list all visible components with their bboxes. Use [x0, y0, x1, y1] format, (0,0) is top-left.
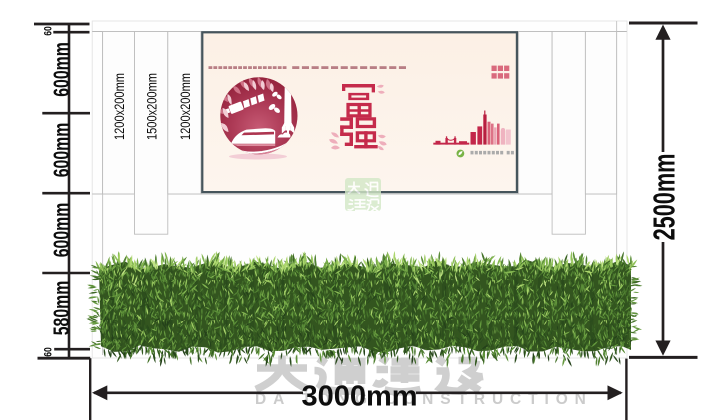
svg-text:600mm: 600mm	[50, 203, 74, 258]
svg-text:60: 60	[43, 26, 55, 36]
svg-text:1200x200mm: 1200x200mm	[178, 73, 194, 140]
svg-text:2500mm: 2500mm	[647, 154, 682, 241]
svg-text:580mm: 580mm	[50, 281, 74, 336]
svg-text:600mm: 600mm	[50, 123, 74, 178]
svg-text:600mm: 600mm	[50, 42, 74, 97]
svg-text:1500x200mm: 1500x200mm	[144, 73, 160, 140]
svg-text:3000mm: 3000mm	[301, 381, 417, 413]
svg-text:1200x200mm: 1200x200mm	[112, 73, 128, 140]
svg-text:60: 60	[43, 347, 55, 357]
